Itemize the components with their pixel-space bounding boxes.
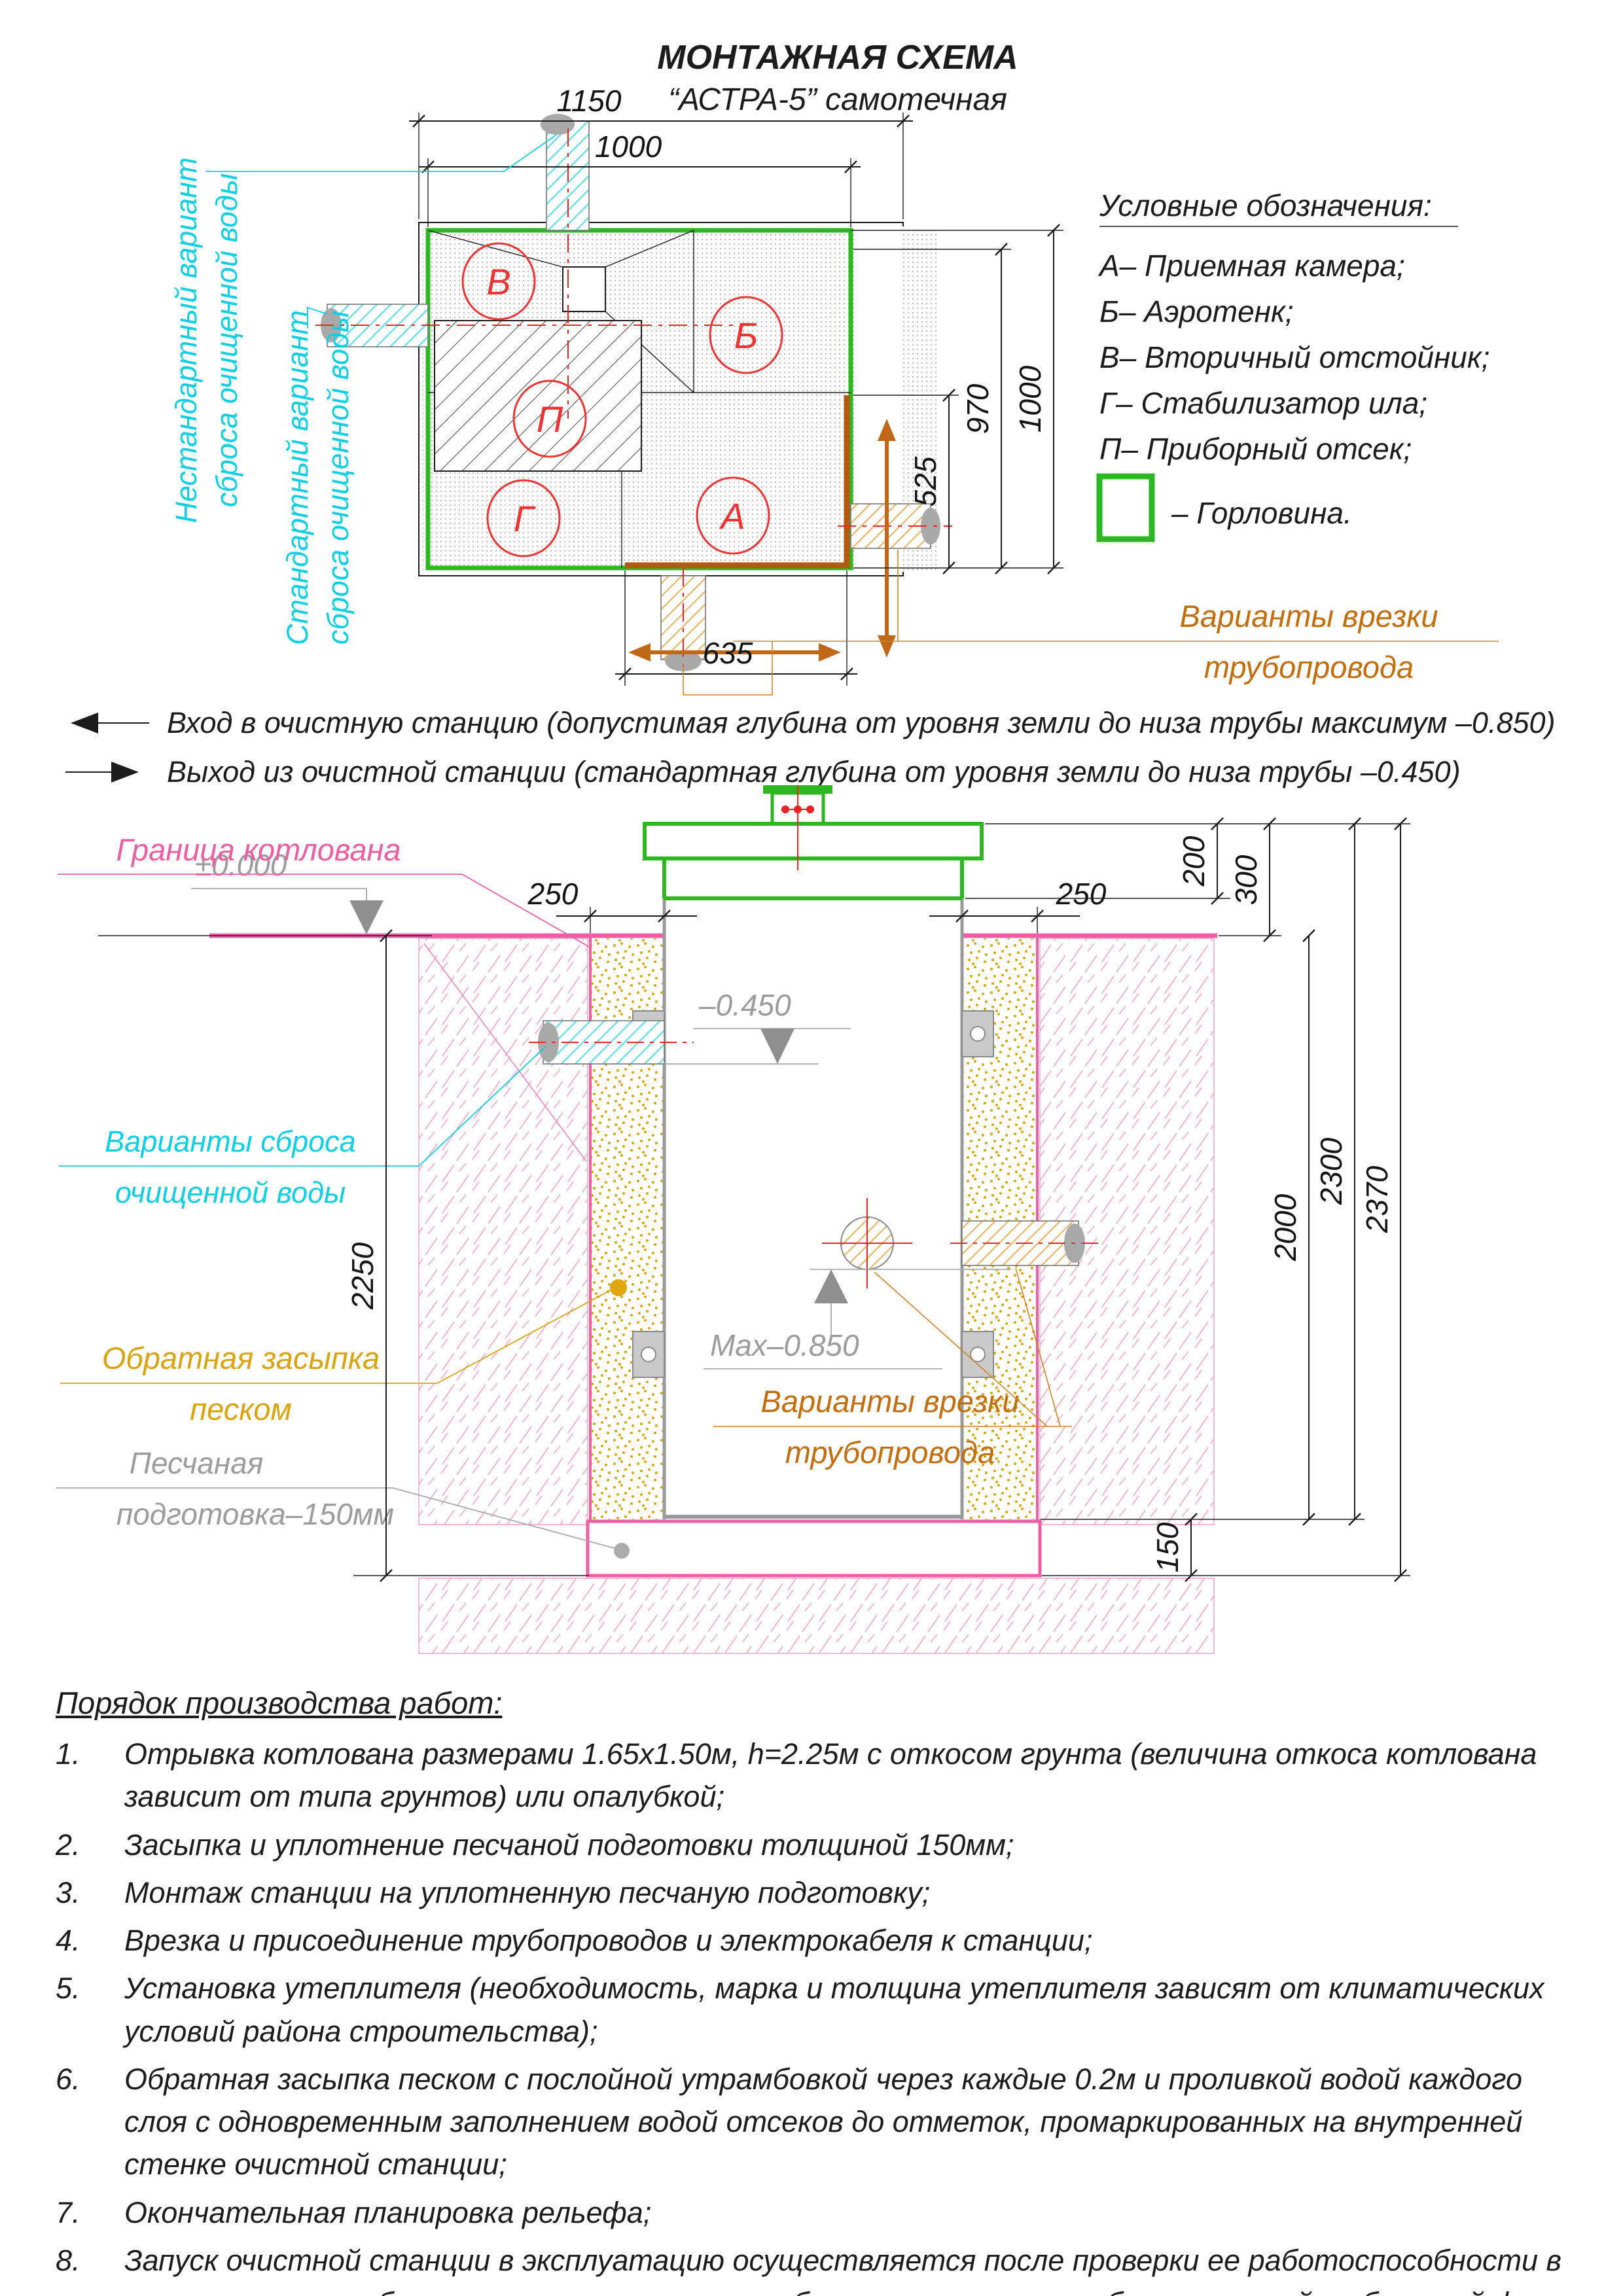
label-standard-line1: Стандартный вариант xyxy=(281,310,314,645)
legend-item-g: Г– Стабилизатор ила; xyxy=(1099,386,1427,420)
funnel-box xyxy=(563,267,605,311)
dim-200: 200 xyxy=(1177,836,1211,887)
work-item-text: Монтаж станции на уплотненную песчаную п… xyxy=(124,1871,1590,1914)
label-nonstandard-line1: Нестандартный вариант xyxy=(169,158,203,523)
legend: Условные обозначения: А– Приемная камера… xyxy=(1097,188,1489,539)
compartment-g: Г xyxy=(514,498,536,539)
work-item-text: Окончательная планировка рельефа; xyxy=(124,2191,1590,2234)
backfill-point xyxy=(610,1279,627,1296)
work-item-text: Отрывка котлована размерами 1.65х1.50м, … xyxy=(124,1733,1590,1818)
dim-1150: 1150 xyxy=(557,84,622,118)
work-item-text: Врезка и присоединение трубопроводов и э… xyxy=(124,1919,1590,1962)
flow-notes: Вход в очистную станцию (допустимая глуб… xyxy=(65,706,1556,788)
legend-neck-label: – Горловина. xyxy=(1171,496,1352,530)
work-item-number: 7. xyxy=(56,2191,124,2234)
dim-250-right: 250 xyxy=(1056,877,1107,911)
compartment-b: Б xyxy=(734,315,758,356)
work-item-text: Установка утеплителя (необходимость, мар… xyxy=(124,1967,1590,2053)
work-order-title: Порядок производства работ: xyxy=(56,1685,1590,1721)
legend-item-b: Б– Аэротенк; xyxy=(1099,294,1293,328)
sandprep-label-line1: Песчаная xyxy=(130,1446,264,1480)
instrument-bay xyxy=(435,321,641,471)
outlet-arrow-icon xyxy=(111,762,139,783)
backfill-label-line2: песком xyxy=(190,1392,292,1426)
installation-scheme-page: МОНТАЖНАЯ СХЕМА “АСТРА-5” самотечная xyxy=(0,0,1623,2296)
label-standard-line2: сброса очищенной воды xyxy=(321,311,355,645)
outlet-pipe-bottom xyxy=(661,568,705,673)
dim-300: 300 xyxy=(1229,855,1263,905)
dim-2370: 2370 xyxy=(1360,1165,1394,1233)
outlet-note: Выход из очистной станции (стандартная г… xyxy=(167,755,1461,788)
work-item-1: 1. Отрывка котлована размерами 1.65х1.50… xyxy=(56,1733,1590,1818)
work-item-number: 4. xyxy=(56,1919,124,1962)
work-item-7: 7. Окончательная планировка рельефа; xyxy=(56,2191,1590,2234)
legend-item-v: В– Вторичный отстойник; xyxy=(1099,340,1489,374)
label-nonstandard-line2: сброса очищенной воды xyxy=(210,173,243,507)
soil-bottom xyxy=(419,1578,1214,1653)
work-item-number: 3. xyxy=(56,1871,124,1914)
inlet-note: Вход в очистную станцию (допустимая глуб… xyxy=(167,706,1556,739)
work-item-4: 4. Врезка и присоединение трубопроводов … xyxy=(56,1919,1590,1962)
section-view: –0.450 Max–0.850 Варианты врезки трубопр… xyxy=(56,785,1410,1653)
work-item-number: 6. xyxy=(56,2058,124,2186)
work-item-6: 6. Обратная засыпка песком с послойной у… xyxy=(56,2058,1590,2186)
plan-tap-label-line2: трубопровода xyxy=(1204,650,1414,684)
discharge-label-line2: очищенной воды xyxy=(115,1176,346,1209)
page-title: МОНТАЖНАЯ СХЕМА xyxy=(657,39,1018,77)
compartment-v: В xyxy=(486,261,510,302)
section-tap-label-line2: трубопровода xyxy=(785,1435,995,1470)
dim-970: 970 xyxy=(961,383,995,434)
level-0450-text: –0.450 xyxy=(698,988,791,1022)
dim-150: 150 xyxy=(1150,1522,1185,1572)
inlet-arrow-icon xyxy=(71,713,98,733)
tank-lid xyxy=(645,824,982,858)
dim-525: 525 xyxy=(908,456,942,506)
leader-nonstandard xyxy=(206,135,556,171)
section-tap-label-line1: Варианты врезки xyxy=(760,1384,1019,1419)
discharge-label-line1: Варианты сброса xyxy=(105,1125,355,1158)
work-item-number: 8. xyxy=(56,2239,124,2296)
page-subtitle: “АСТРА-5” самотечная xyxy=(668,82,1007,117)
compartment-p: П xyxy=(537,398,563,440)
dim-1000-right: 1000 xyxy=(1013,365,1047,433)
work-item-2: 2. Засыпка и уплотнение песчаной подгото… xyxy=(56,1824,1590,1866)
sand-prep-layer xyxy=(588,1521,1040,1576)
backfill-label-line1: Обратная засыпка xyxy=(102,1341,380,1375)
legend-title: Условные обозначения: xyxy=(1099,188,1432,222)
sandprep-label-line2: подготовка–150мм xyxy=(116,1497,394,1531)
work-item-number: 2. xyxy=(56,1824,124,1866)
work-item-text: Засыпка и уплотнение песчаной подготовки… xyxy=(124,1824,1590,1866)
work-item-3: 3. Монтаж станции на уплотненную песчану… xyxy=(56,1871,1590,1914)
legend-item-p: П– Приборный отсек; xyxy=(1099,432,1412,466)
dim-2300: 2300 xyxy=(1314,1137,1348,1205)
level-0850-text: Max–0.850 xyxy=(710,1328,859,1362)
dim-250-left: 250 xyxy=(527,877,579,911)
work-item-number: 1. xyxy=(56,1733,124,1818)
work-item-text: Запуск очистной станции в эксплуатацию о… xyxy=(124,2239,1590,2296)
dim-2250: 2250 xyxy=(346,1242,380,1310)
dim-2000: 2000 xyxy=(1268,1193,1302,1262)
outlet-pipe-right xyxy=(838,504,952,548)
neck-symbol-icon xyxy=(1099,476,1152,539)
work-item-text: Обратная засыпка песком с послойной утра… xyxy=(124,2058,1590,2186)
work-item-8: 8. Запуск очистной станции в эксплуатаци… xyxy=(56,2239,1590,2296)
work-order-list: Порядок производства работ: 1. Отрывка к… xyxy=(56,1685,1590,2296)
compartment-a: А xyxy=(719,495,745,537)
work-item-5: 5. Установка утеплителя (необходимость, … xyxy=(56,1967,1590,2053)
sandprep-point xyxy=(614,1543,630,1559)
work-item-number: 5. xyxy=(56,1967,124,2053)
plan-tap-label-line1: Варианты врезки xyxy=(1179,599,1438,633)
legend-item-a: А– Приемная камера; xyxy=(1097,249,1405,283)
pit-boundary-label: Граница котлована xyxy=(116,832,401,867)
dim-1000-top: 1000 xyxy=(595,130,662,164)
